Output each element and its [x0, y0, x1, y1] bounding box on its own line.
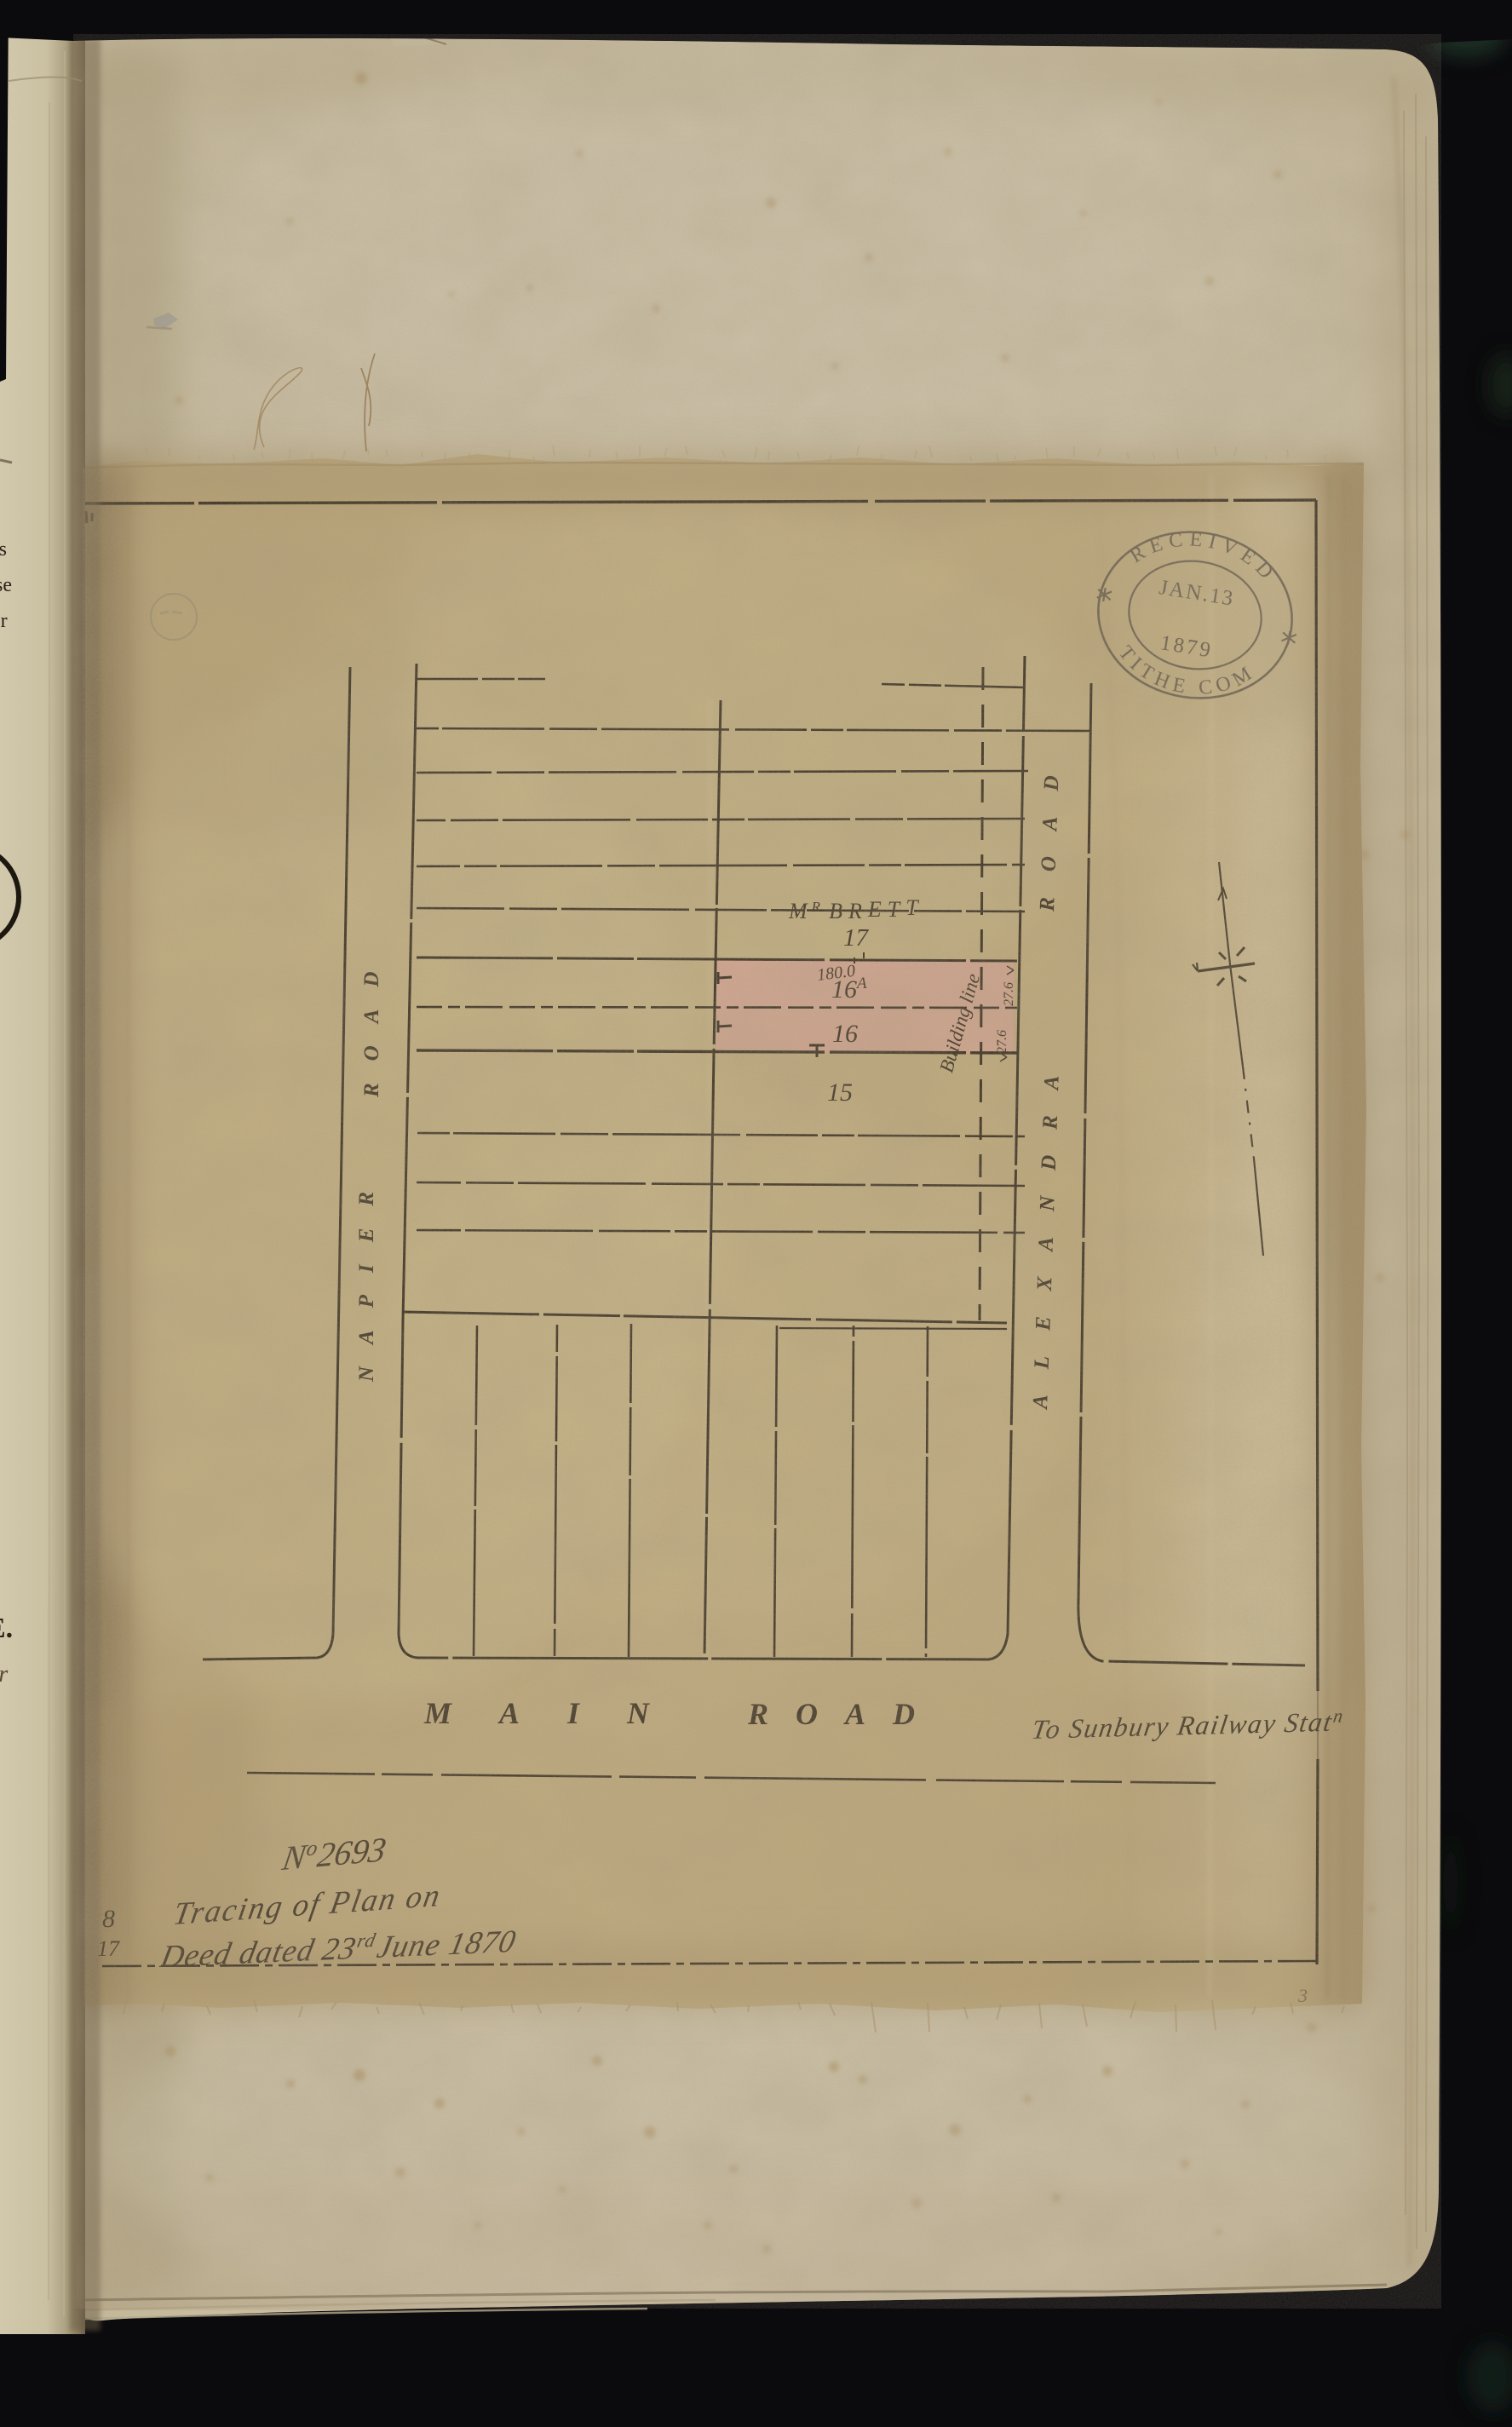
svg-text:er: er	[0, 1661, 8, 1688]
svg-text:er: er	[0, 610, 8, 632]
svg-text:se: se	[0, 574, 12, 596]
svg-text:is: is	[0, 538, 7, 561]
svg-text:u: u	[0, 1703, 1, 1728]
svg-text:E.: E.	[0, 1613, 13, 1644]
